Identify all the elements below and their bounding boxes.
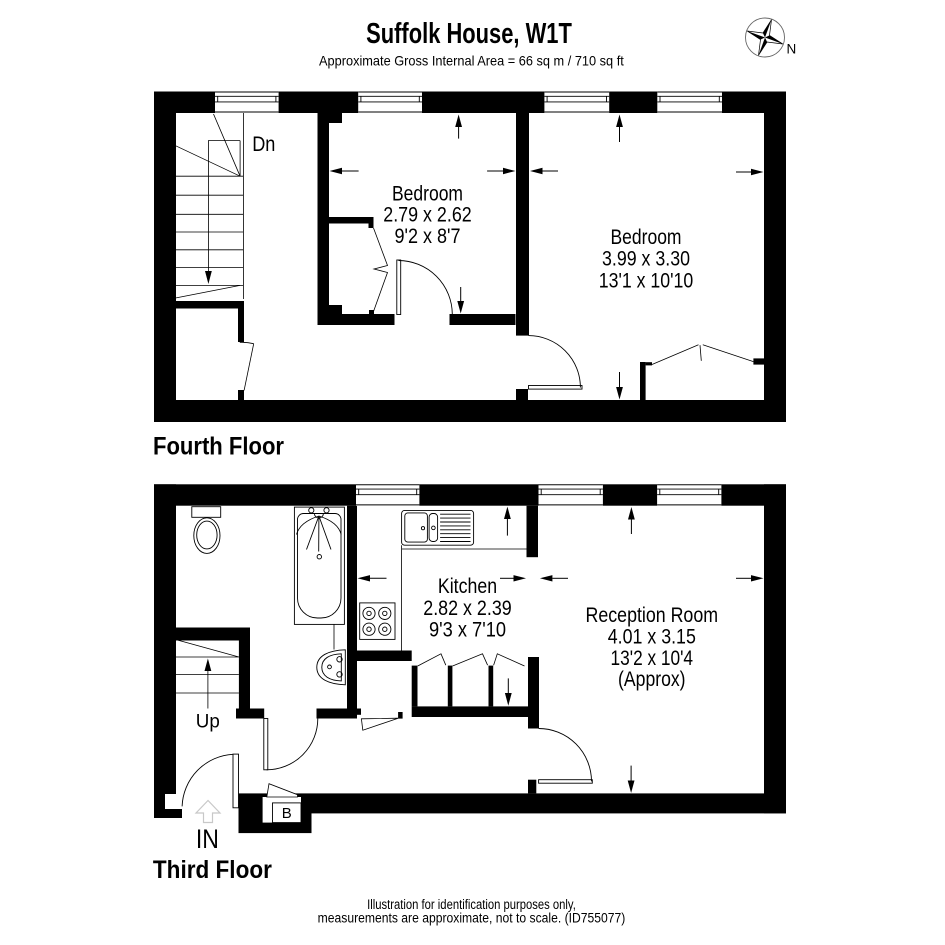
svg-text:Approximate Gross Internal Are: Approximate Gross Internal Area = 66 sq … (319, 53, 624, 69)
svg-text:13'2 x 10'4: 13'2 x 10'4 (611, 647, 694, 670)
svg-text:Bedroom: Bedroom (392, 182, 463, 205)
svg-text:3.99 x 3.30: 3.99 x 3.30 (602, 248, 690, 271)
svg-text:Dn: Dn (252, 133, 275, 156)
svg-text:Kitchen: Kitchen (438, 575, 497, 598)
svg-text:(Approx): (Approx) (618, 668, 686, 691)
svg-text:measurements are approximate,: measurements are approximate, not to sca… (318, 910, 626, 925)
svg-text:Suffolk House, W1T: Suffolk House, W1T (366, 18, 572, 50)
svg-text:13'1 x 10'10: 13'1 x 10'10 (599, 269, 693, 292)
svg-text:4.01 x 3.15: 4.01 x 3.15 (608, 626, 696, 649)
svg-text:2.79 x 2.62: 2.79 x 2.62 (383, 204, 472, 227)
svg-text:B: B (282, 805, 292, 822)
svg-text:IN: IN (196, 824, 219, 854)
svg-text:Bedroom: Bedroom (611, 226, 682, 249)
svg-text:Fourth Floor: Fourth Floor (153, 433, 284, 461)
svg-text:9'2 x 8'7: 9'2 x 8'7 (395, 225, 461, 248)
svg-text:Third Floor: Third Floor (153, 856, 272, 884)
svg-text:N: N (787, 41, 797, 56)
svg-text:Reception Room: Reception Room (586, 604, 719, 627)
svg-text:9'3 x 7'10: 9'3 x 7'10 (429, 619, 506, 642)
svg-text:2.82 x 2.39: 2.82 x 2.39 (423, 597, 512, 620)
svg-text:Up: Up (196, 712, 220, 733)
